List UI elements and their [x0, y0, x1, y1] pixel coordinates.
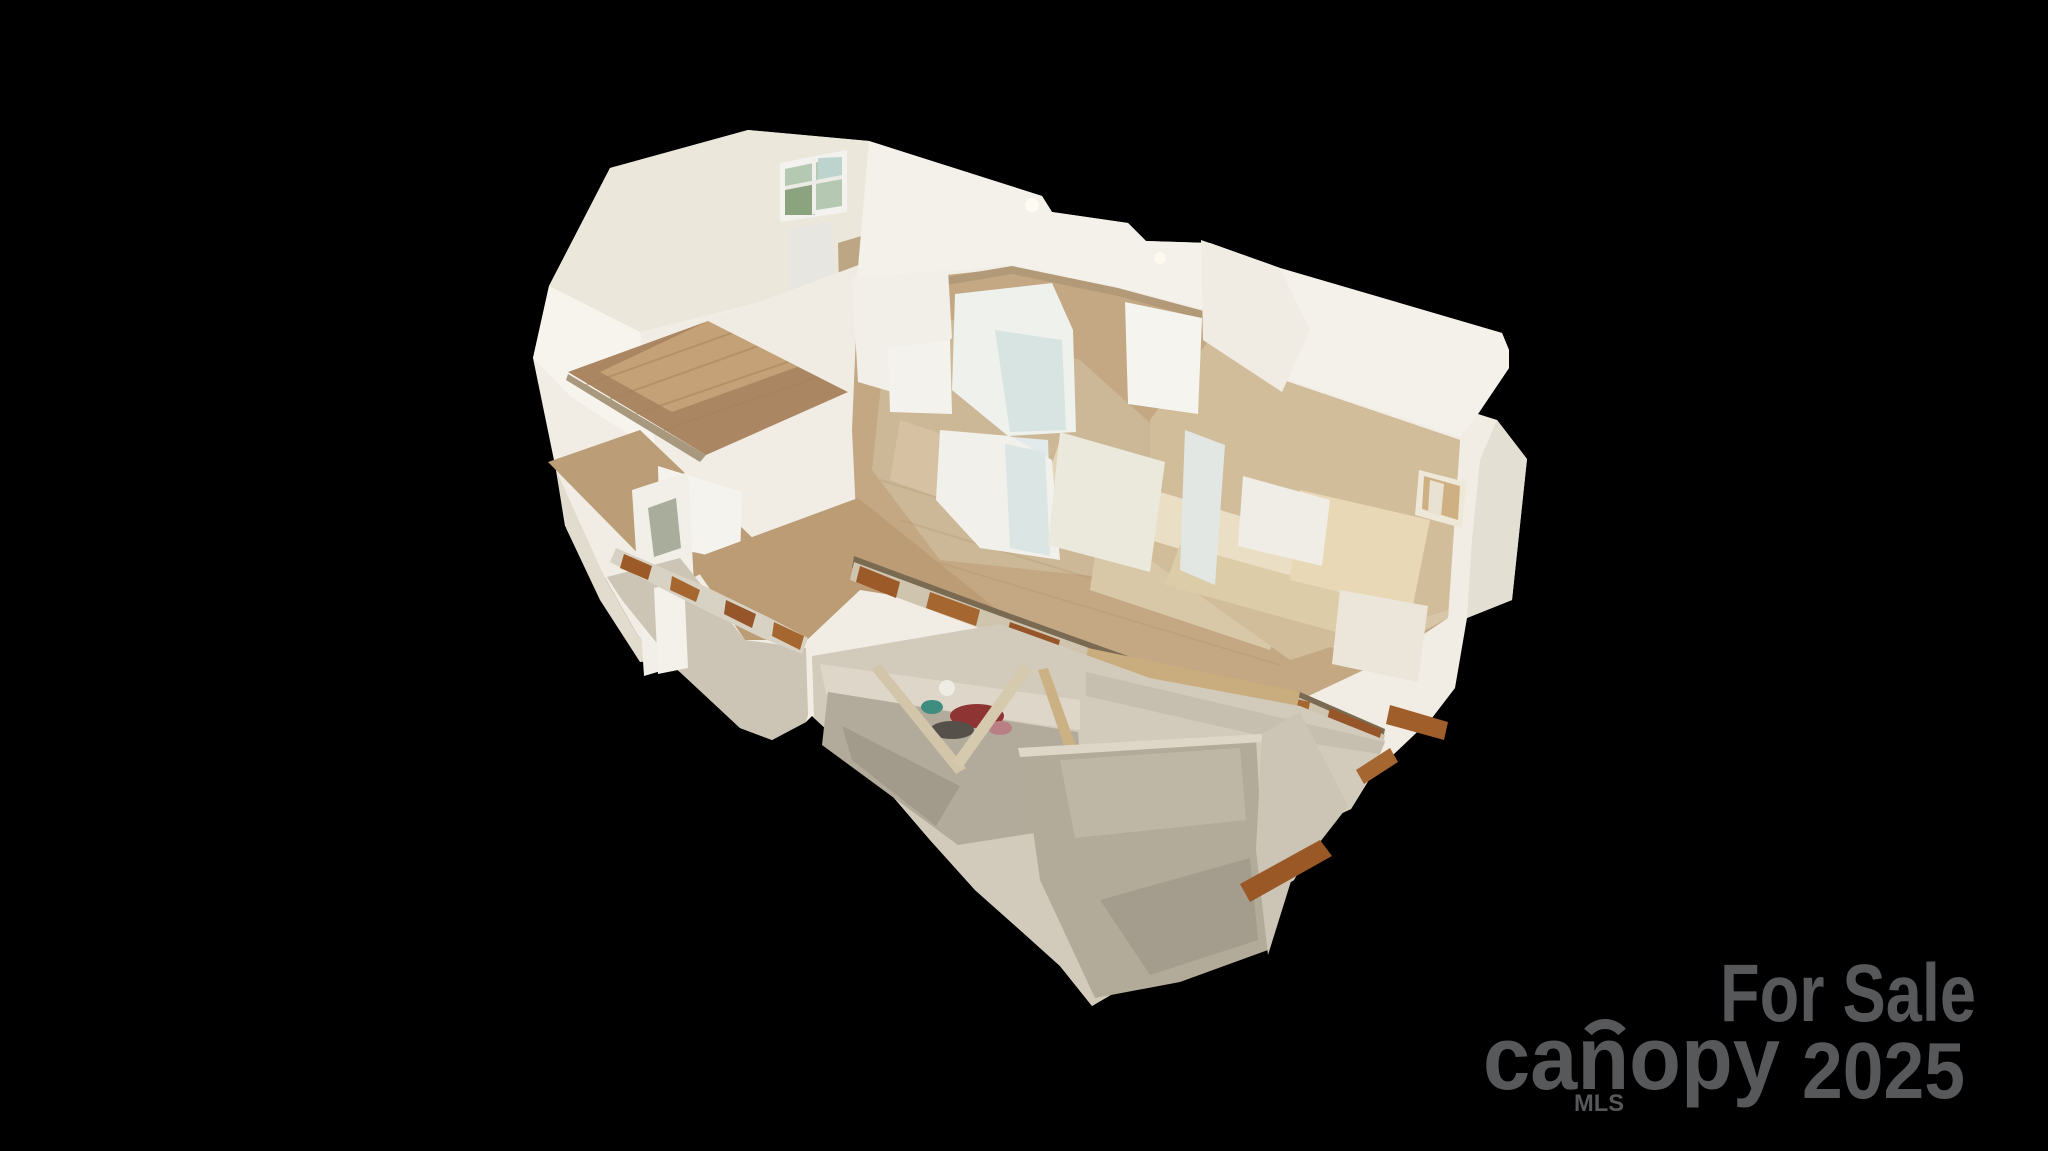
svg-text:2025: 2025	[1802, 1026, 1965, 1115]
svg-text:MLS: MLS	[1574, 1090, 1624, 1117]
svg-text:canopy: canopy	[1483, 1009, 1780, 1109]
